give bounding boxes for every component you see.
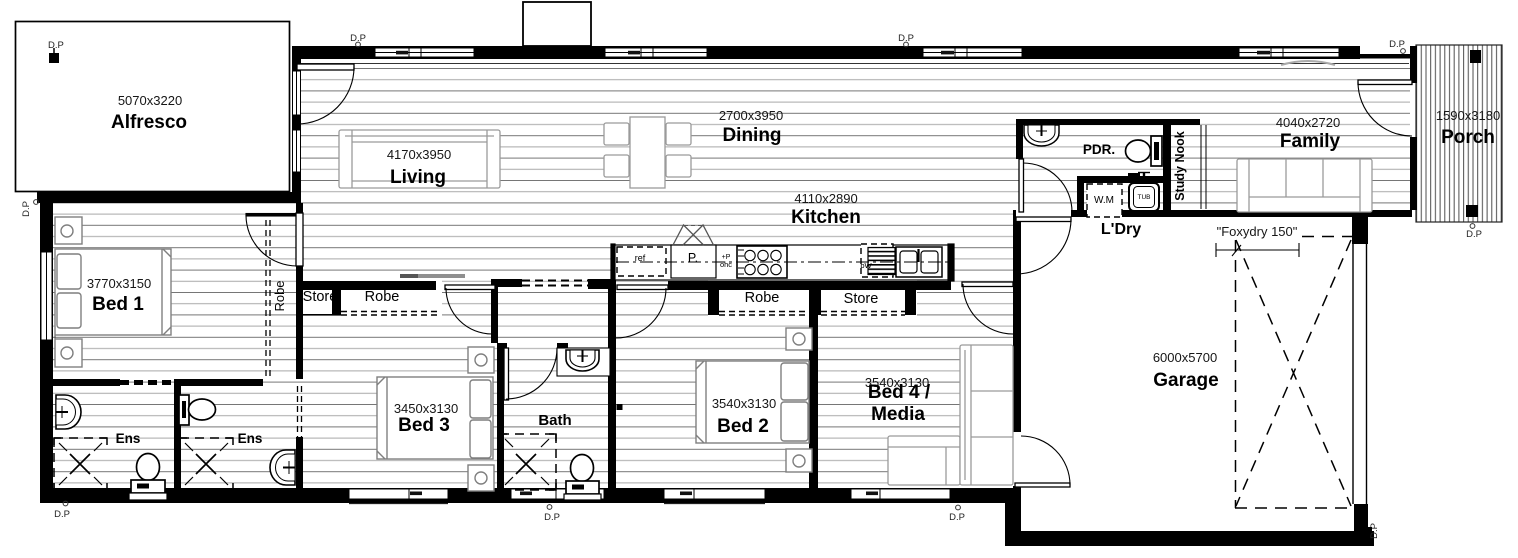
svg-text:Alfresco: Alfresco	[111, 112, 187, 133]
svg-text:Store: Store	[844, 291, 879, 307]
svg-text:Bed 3: Bed 3	[398, 415, 450, 436]
svg-text:Porch: Porch	[1441, 127, 1495, 148]
svg-text:D.P: D.P	[949, 512, 965, 523]
svg-text:D.P: D.P	[54, 509, 70, 520]
svg-text:1590x3180: 1590x3180	[1436, 108, 1500, 123]
svg-text:Living: Living	[390, 167, 446, 188]
svg-text:W.M: W.M	[1094, 195, 1114, 206]
svg-text:Study Nook: Study Nook	[1173, 131, 1187, 200]
svg-text:Bath: Bath	[538, 412, 571, 429]
svg-text:3540x3130: 3540x3130	[712, 396, 776, 411]
svg-text:D.P: D.P	[21, 201, 32, 217]
svg-text:D.P: D.P	[544, 512, 560, 523]
svg-text:Ens: Ens	[116, 431, 141, 446]
svg-text:3770x3150: 3770x3150	[87, 276, 151, 291]
svg-text:3450x3130: 3450x3130	[394, 401, 458, 416]
svg-text:Media: Media	[871, 404, 925, 425]
svg-text:P.: P.	[688, 251, 698, 265]
svg-text:D.P: D.P	[1389, 39, 1405, 50]
svg-text:D.P: D.P	[898, 33, 914, 44]
svg-text:5070x3220: 5070x3220	[118, 93, 182, 108]
svg-text:Family: Family	[1280, 131, 1341, 152]
svg-text:Bed 1: Bed 1	[92, 294, 144, 315]
svg-text:Garage: Garage	[1153, 370, 1218, 391]
svg-text:4040x2720: 4040x2720	[1276, 115, 1340, 130]
svg-text:D.P: D.P	[350, 33, 366, 44]
svg-text:Kitchen: Kitchen	[791, 207, 861, 228]
svg-text:TUB: TUB	[1138, 194, 1151, 201]
svg-text:"Foxydry 150": "Foxydry 150"	[1217, 224, 1298, 239]
svg-text:Store: Store	[303, 289, 338, 305]
svg-text:Bed 4 /: Bed 4 /	[868, 382, 931, 403]
svg-text:L'Dry: L'Dry	[1101, 221, 1141, 238]
svg-text:D.P: D.P	[48, 40, 64, 51]
svg-text:4170x3950: 4170x3950	[387, 147, 451, 162]
svg-text:PDR.: PDR.	[1083, 142, 1115, 157]
svg-text:6000x5700: 6000x5700	[1153, 350, 1217, 365]
svg-text:4110x2890: 4110x2890	[794, 191, 857, 206]
svg-text:2700x3950: 2700x3950	[719, 108, 783, 123]
svg-text:Robe: Robe	[365, 289, 400, 305]
svg-text:ohc: ohc	[720, 260, 732, 269]
svg-text:D.P: D.P	[1466, 229, 1482, 240]
svg-text:Bed 2: Bed 2	[717, 416, 769, 437]
svg-text:Ens: Ens	[238, 431, 263, 446]
svg-text:Dining: Dining	[722, 125, 781, 146]
svg-text:Robe: Robe	[272, 280, 287, 311]
svg-text:Robe: Robe	[745, 290, 780, 306]
